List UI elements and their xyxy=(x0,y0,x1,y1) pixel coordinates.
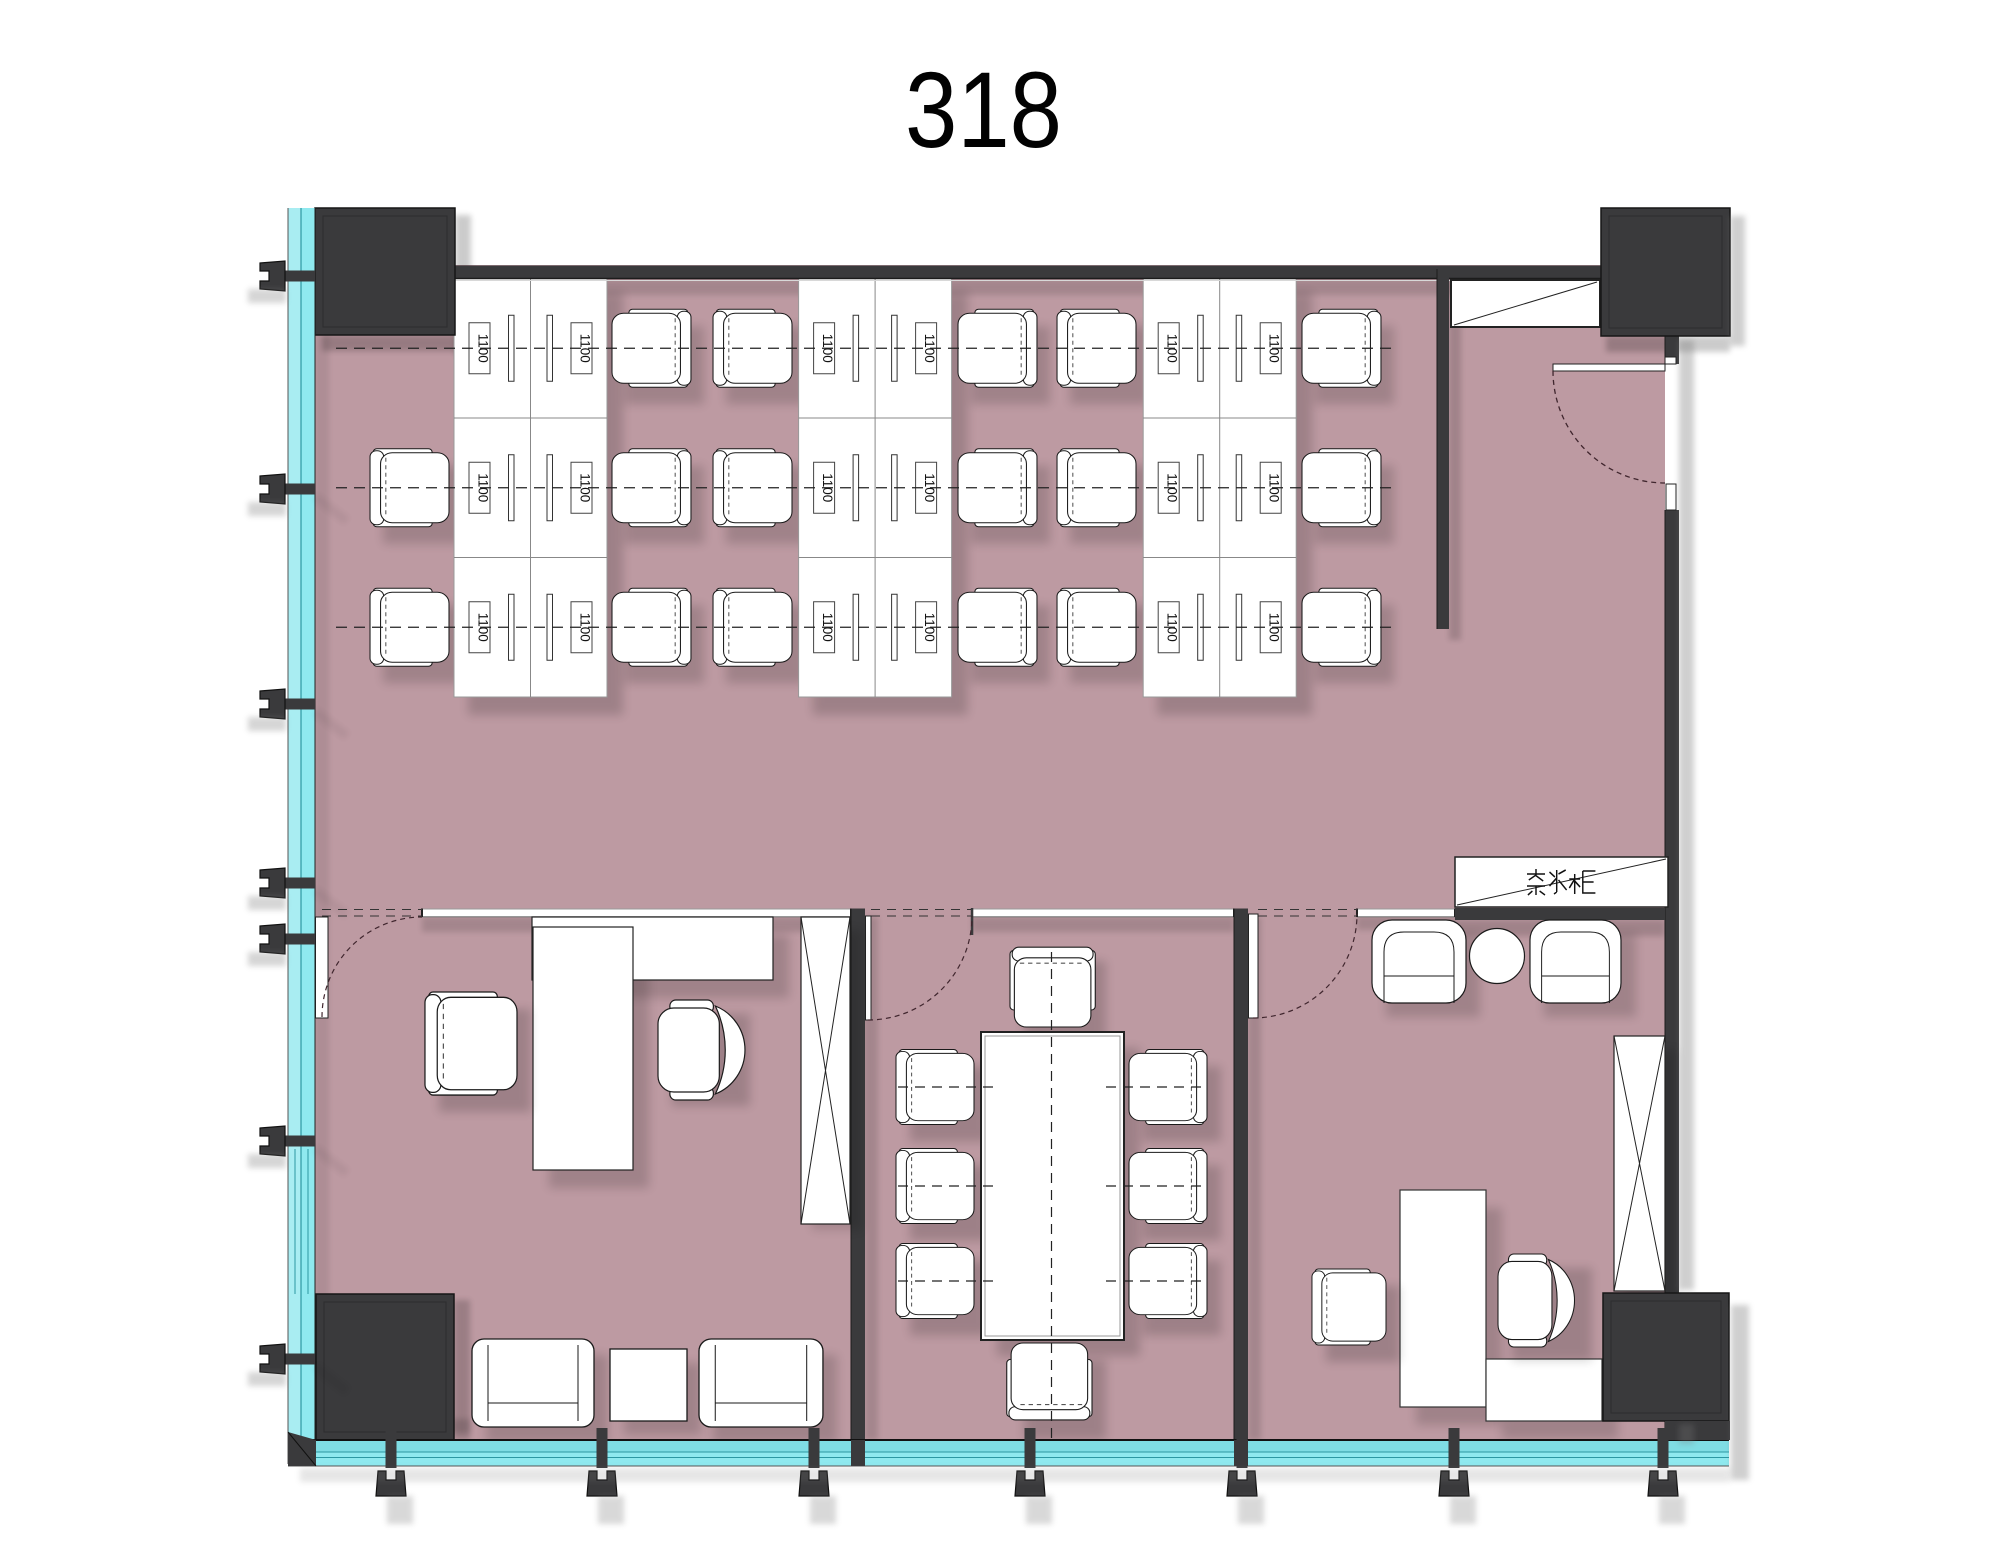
svg-text:318: 318 xyxy=(905,49,1062,170)
